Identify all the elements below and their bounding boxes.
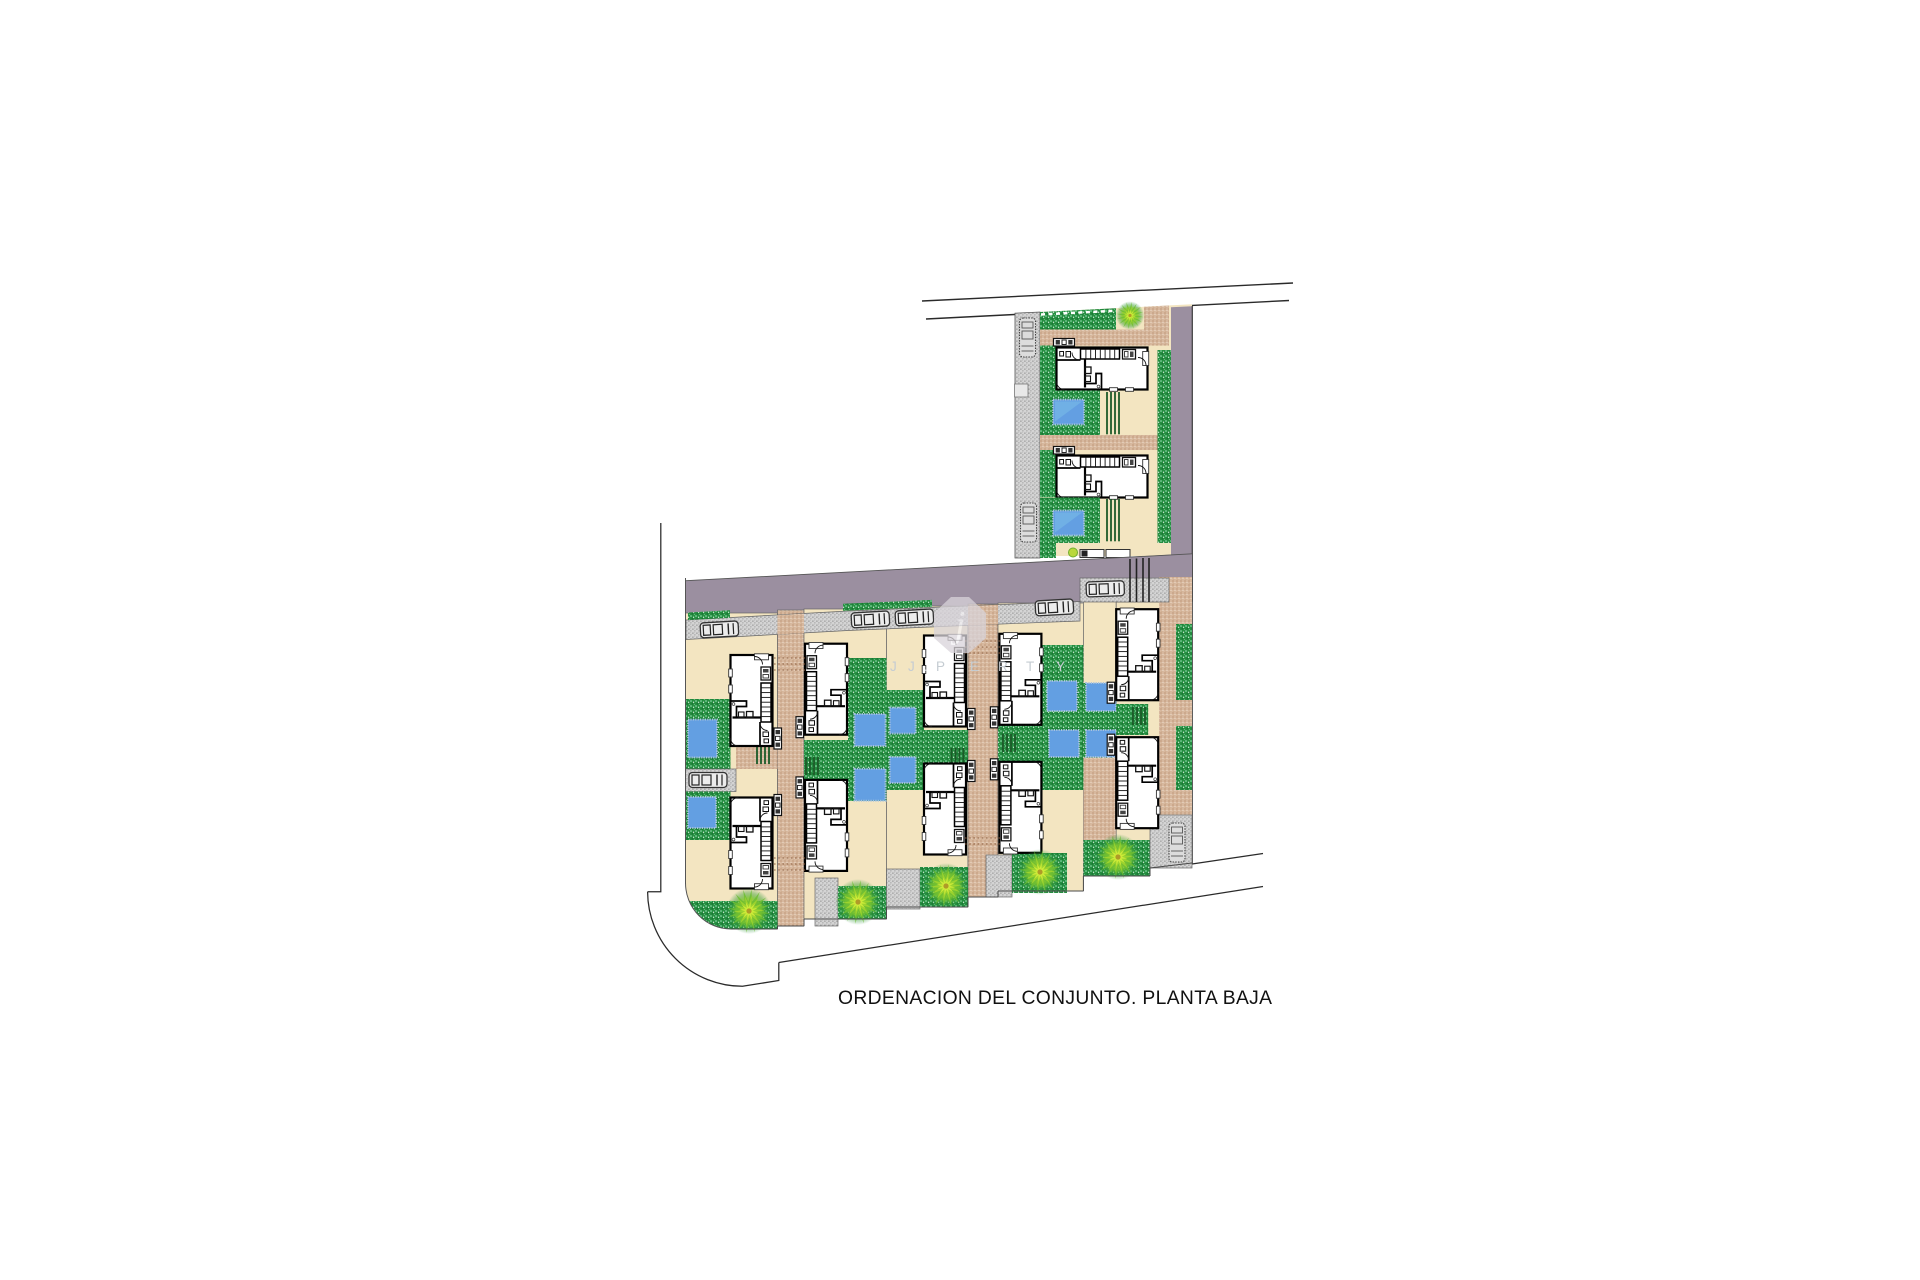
svg-text:P: P [936,659,945,674]
svg-text:ORDENACION DEL CONJUNTO. P: ORDENACION DEL CONJUNTO. PLANTA BAJA [838,988,1272,1009]
svg-text:J: J [890,659,897,674]
svg-text:Y: Y [1056,659,1065,674]
svg-text:T: T [1026,659,1034,674]
svg-text:J: J [908,659,915,674]
svg-text:.: . [924,659,928,674]
svg-text:R: R [998,659,1008,674]
svg-text:E: E [970,659,979,674]
